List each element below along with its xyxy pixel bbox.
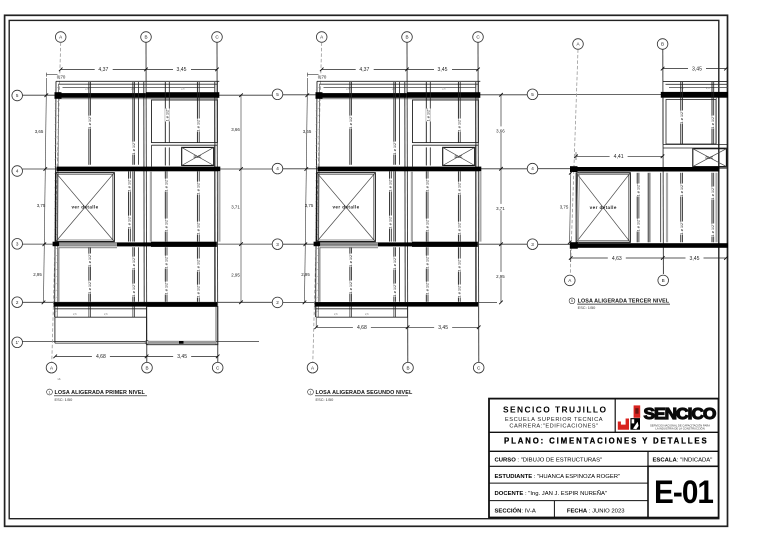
svg-text:SECCIÓN: IV-A: SECCIÓN: IV-A: [495, 507, 536, 515]
svg-text:4,63: 4,63: [612, 256, 622, 262]
svg-text:1 ø 1/2": 1 ø 1/2": [166, 108, 170, 121]
svg-text:4,41: 4,41: [614, 154, 624, 160]
svg-text:1 ø 1/2": 1 ø 1/2": [425, 178, 429, 191]
svg-text:3,45: 3,45: [692, 66, 702, 72]
svg-text:1 ø 1/2": 1 ø 1/2": [349, 115, 353, 128]
svg-text:3,66: 3,66: [231, 127, 240, 132]
svg-text:FECHA : JUNIO 2023: FECHA : JUNIO 2023: [567, 509, 625, 515]
svg-text:1 ø 1/2": 1 ø 1/2": [164, 255, 168, 268]
svg-text:3: 3: [531, 242, 534, 247]
svg-text:3,75: 3,75: [37, 203, 46, 208]
svg-text:1 ø 1/2": 1 ø 1/2": [132, 256, 136, 269]
svg-text:1: 1: [310, 390, 312, 394]
svg-text:1 ø 1/2": 1 ø 1/2": [128, 215, 132, 228]
svg-text:2: 2: [276, 300, 279, 305]
svg-text:1 ø 1/2": 1 ø 1/2": [393, 283, 397, 296]
svg-text:1 ø 1/2": 1 ø 1/2": [458, 221, 462, 234]
svg-text:5: 5: [531, 92, 534, 97]
svg-text:5: 5: [276, 92, 279, 97]
svg-text:3,75: 3,75: [560, 205, 569, 210]
svg-text:SENCICO: SENCICO: [644, 406, 717, 423]
svg-text:1 ø 1/2": 1 ø 1/2": [197, 284, 201, 297]
svg-text:1 ø 1/2": 1 ø 1/2": [88, 280, 92, 293]
svg-text:1 ø 1/2": 1 ø 1/2": [389, 215, 393, 228]
svg-text:2,95: 2,95: [301, 272, 310, 277]
svg-text:B: B: [145, 365, 148, 370]
svg-text:5: 5: [16, 93, 19, 98]
svg-text:1 ø 1/2": 1 ø 1/2": [427, 108, 431, 121]
svg-text:E-01: E-01: [654, 474, 713, 510]
svg-text:1 ø 1/2": 1 ø 1/2": [680, 221, 684, 234]
svg-text:1 ø 1/2": 1 ø 1/2": [349, 280, 353, 293]
svg-text:3,65: 3,65: [303, 129, 312, 134]
svg-text:3,65: 3,65: [35, 129, 44, 134]
svg-text:LOSA ALIGERADA TERCER NIVEL: LOSA ALIGERADA TERCER NIVEL: [578, 298, 670, 304]
svg-text:1 ø 1/2": 1 ø 1/2": [389, 178, 393, 191]
svg-text:3,45: 3,45: [690, 256, 700, 262]
svg-text:1 ø 1/2": 1 ø 1/2": [458, 284, 462, 297]
svg-text:LOSA ALIGERADA PRIMER NIVEL: LOSA ALIGERADA PRIMER NIVEL: [55, 390, 146, 396]
svg-text:LOSA ALIGERADA SEGUNDO NIVEL: LOSA ALIGERADA SEGUNDO NIVEL: [316, 390, 413, 396]
svg-text:2,6: 2,6: [104, 312, 108, 316]
svg-text:1 ø 1/2": 1 ø 1/2": [636, 183, 640, 196]
svg-text:1 ø 1/2": 1 ø 1/2": [636, 218, 640, 231]
svg-text:2,6: 2,6: [181, 86, 185, 90]
svg-text:1 ø 1/2": 1 ø 1/2": [680, 110, 684, 123]
svg-text:DUC: DUC: [455, 155, 463, 159]
svg-text:2,6: 2,6: [73, 312, 77, 316]
svg-text:ESCALA: "INDICADA": ESCALA: "INDICADA": [653, 458, 713, 464]
svg-text:SENCICO TRUJILLO: SENCICO TRUJILLO: [503, 404, 607, 414]
svg-text:1': 1': [15, 340, 19, 345]
svg-text:3: 3: [16, 241, 19, 246]
svg-text:B: B: [144, 35, 147, 40]
svg-text:1: 1: [49, 390, 51, 394]
svg-text:1 ø 1/2": 1 ø 1/2": [164, 281, 168, 294]
svg-text:1 ø 1/2": 1 ø 1/2": [164, 218, 168, 231]
svg-text:1 ø 1/2": 1 ø 1/2": [393, 141, 397, 154]
svg-text:4: 4: [16, 169, 19, 174]
svg-text:2,6: 2,6: [706, 86, 710, 90]
svg-text:4: 4: [276, 166, 279, 171]
svg-text:B: B: [661, 42, 664, 47]
svg-text:4: 4: [531, 166, 534, 171]
svg-text:ver detalle: ver detalle: [332, 205, 359, 210]
svg-text:ESC: 1/50: ESC: 1/50: [316, 397, 335, 402]
svg-text:B: B: [405, 35, 408, 40]
svg-text:DOCENTE : "Ing. JAN J. ESPIR N: DOCENTE : "Ing. JAN J. ESPIR NUREÑA": [495, 490, 608, 497]
svg-text:2,6: 2,6: [442, 86, 446, 90]
svg-text:3,45: 3,45: [177, 67, 187, 73]
svg-text:4,68: 4,68: [96, 354, 106, 360]
svg-text:1 ø 1/2": 1 ø 1/2": [425, 255, 429, 268]
svg-text:3,45: 3,45: [438, 67, 448, 73]
svg-text:ver detalle: ver detalle: [590, 205, 617, 210]
svg-text:vb: vb: [58, 377, 61, 381]
svg-text:1 ø 1/2": 1 ø 1/2": [128, 178, 132, 191]
svg-text:1 ø 1/2": 1 ø 1/2": [711, 223, 715, 236]
svg-text:0,70: 0,70: [318, 75, 327, 80]
svg-text:CURSO : "DIBUJO DE ESTRUCTURAS: CURSO : "DIBUJO DE ESTRUCTURAS": [495, 458, 603, 464]
svg-text:2,95: 2,95: [231, 273, 240, 278]
svg-text:5: 5: [571, 299, 573, 303]
svg-text:1 ø 1/2": 1 ø 1/2": [197, 258, 201, 271]
svg-text:4,37: 4,37: [359, 67, 369, 73]
svg-text:1 ø 1/2": 1 ø 1/2": [197, 118, 201, 131]
svg-text:DUC: DUC: [194, 155, 202, 159]
svg-text:2: 2: [16, 300, 19, 305]
svg-text:PLANO: CIMENTACIONES Y DETALLE: PLANO: CIMENTACIONES Y DETALLES: [504, 437, 709, 446]
svg-text:1 ø 1/2": 1 ø 1/2": [88, 253, 92, 266]
svg-text:3,45: 3,45: [177, 354, 187, 360]
svg-text:1 ø 1/2": 1 ø 1/2": [88, 115, 92, 128]
svg-text:ESCUELA SUPERIOR TECNICA: ESCUELA SUPERIOR TECNICA: [505, 417, 603, 423]
svg-text:1 ø 1/2": 1 ø 1/2": [349, 253, 353, 266]
svg-text:1 ø 1/2": 1 ø 1/2": [425, 218, 429, 231]
svg-text:B: B: [406, 365, 409, 370]
svg-text:1 ø 1/2": 1 ø 1/2": [197, 221, 201, 234]
svg-text:3,71: 3,71: [231, 205, 240, 210]
svg-text:1 ø 1/2": 1 ø 1/2": [680, 183, 684, 196]
svg-text:2,95: 2,95: [496, 274, 505, 279]
svg-text:ESTUDIANTE : "HUANCA ESPINOZA: ESTUDIANTE : "HUANCA ESPINOZA ROGER": [495, 474, 621, 480]
svg-text:ESC: 1/50: ESC: 1/50: [578, 305, 597, 310]
svg-text:1 ø 1/2": 1 ø 1/2": [425, 281, 429, 294]
svg-text:0,70: 0,70: [57, 75, 66, 80]
svg-text:ESC: 1/50: ESC: 1/50: [55, 397, 74, 402]
svg-text:3,45: 3,45: [438, 325, 448, 331]
svg-text:DUC: DUC: [706, 156, 714, 160]
svg-text:1 ø 1/2": 1 ø 1/2": [711, 186, 715, 199]
svg-text:ver detalle: ver detalle: [71, 205, 98, 210]
svg-text:B: B: [662, 278, 665, 283]
svg-text:1 ø 1/2": 1 ø 1/2": [458, 118, 462, 131]
svg-text:1 ø 1/2": 1 ø 1/2": [132, 283, 136, 296]
svg-text:1 ø 1/2": 1 ø 1/2": [164, 178, 168, 191]
svg-text:4,68: 4,68: [357, 325, 367, 331]
svg-text:2,6: 2,6: [365, 312, 369, 316]
svg-text:1 ø 1/2": 1 ø 1/2": [458, 181, 462, 194]
svg-text:1 ø 1/2": 1 ø 1/2": [393, 256, 397, 269]
svg-text:1 ø 1/2": 1 ø 1/2": [458, 258, 462, 271]
svg-text:1 ø 1/2": 1 ø 1/2": [711, 115, 715, 128]
svg-text:1 ø 1/2": 1 ø 1/2": [197, 181, 201, 194]
svg-text:2,6: 2,6: [334, 312, 338, 316]
svg-text:3: 3: [276, 242, 279, 247]
svg-text:3,66: 3,66: [496, 129, 505, 134]
svg-text:2,95: 2,95: [33, 272, 42, 277]
svg-text:3,71: 3,71: [496, 206, 505, 211]
svg-text:CARRERA:"EDIFICACIONES": CARRERA:"EDIFICACIONES": [509, 423, 598, 429]
svg-text:3,75: 3,75: [305, 203, 314, 208]
svg-text:4,37: 4,37: [98, 67, 108, 73]
svg-text:1 ø 1/2": 1 ø 1/2": [132, 141, 136, 154]
